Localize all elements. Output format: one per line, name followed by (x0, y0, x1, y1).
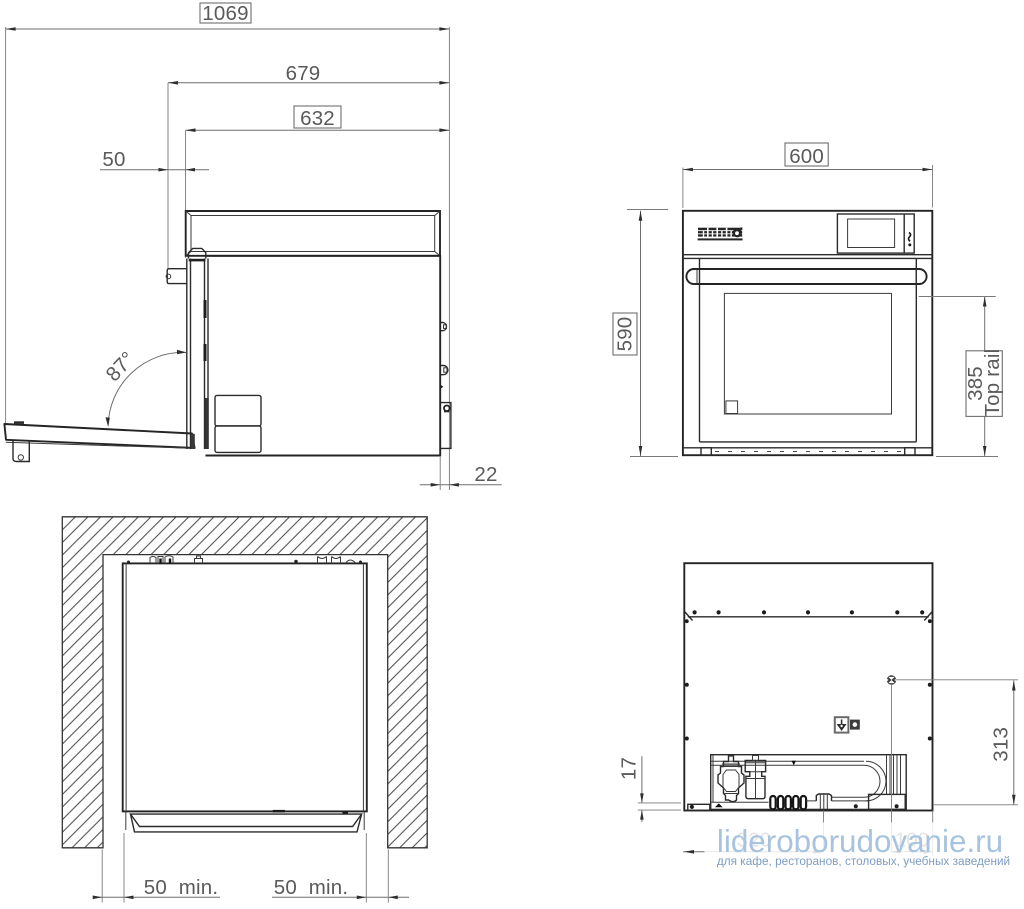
svg-text:50 min.: 50 min. (274, 876, 349, 899)
svg-text:679: 679 (286, 62, 321, 85)
svg-text:313: 313 (989, 727, 1012, 762)
svg-text:1069: 1069 (202, 2, 248, 25)
svg-text:50 min.: 50 min. (144, 876, 219, 899)
svg-text:632: 632 (300, 107, 335, 130)
svg-text:для кафе, ресторанов, столовых: для кафе, ресторанов, столовых, учебных … (717, 854, 1010, 868)
svg-text:17: 17 (618, 757, 641, 780)
svg-text:600: 600 (789, 145, 824, 168)
svg-text:590: 590 (614, 317, 637, 352)
svg-text:22: 22 (474, 463, 497, 486)
svg-text:Top rail: Top rail (981, 349, 1004, 417)
svg-text:50: 50 (102, 148, 125, 171)
